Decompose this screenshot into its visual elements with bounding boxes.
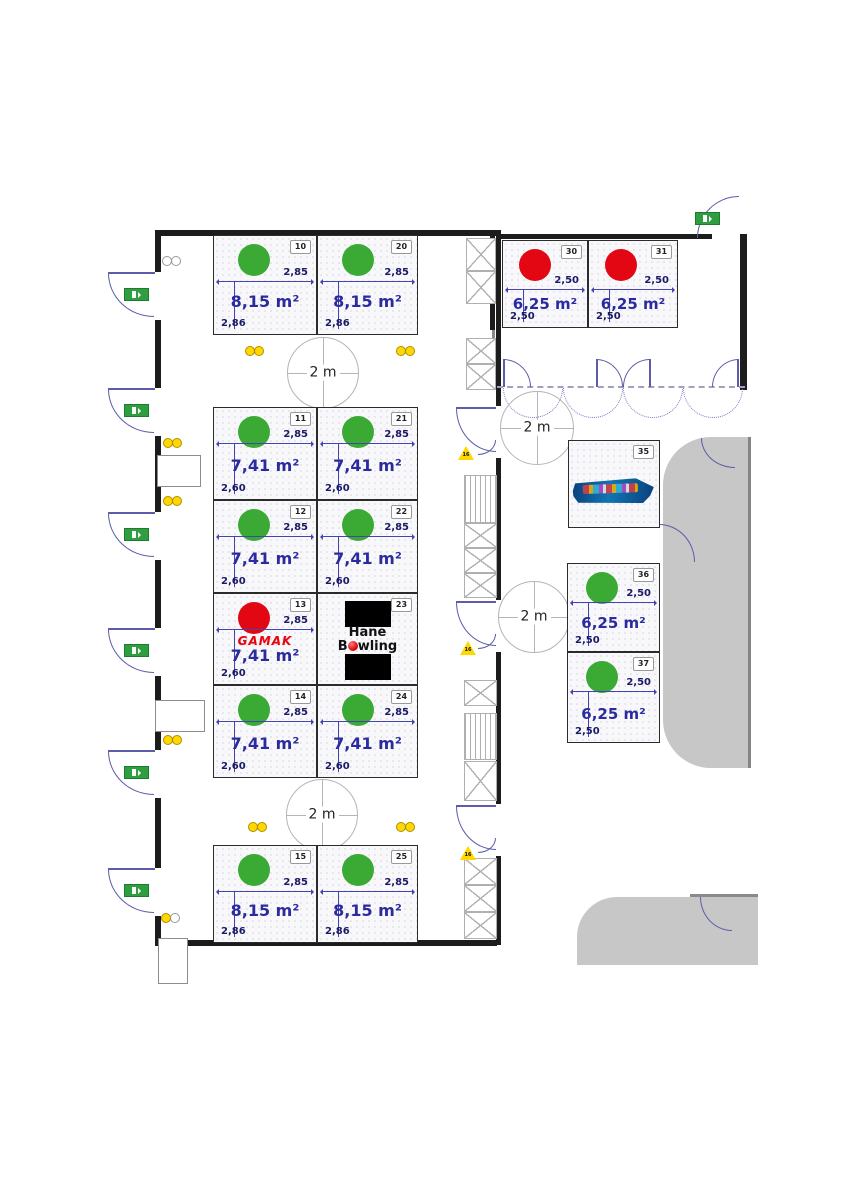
- booth-number: 21: [391, 412, 412, 426]
- area-label: 7,41 m²: [214, 549, 316, 568]
- wall-segment: [497, 234, 712, 239]
- area-label: 7,41 m²: [214, 646, 316, 665]
- swing-arc-dotted: [623, 388, 683, 418]
- wall-segment: [155, 230, 161, 272]
- shaft-box: [464, 858, 497, 885]
- dim-line-h: [217, 281, 313, 282]
- door-arc: [596, 359, 623, 387]
- area-label: 6,25 m²: [568, 614, 659, 632]
- circle-label: 2 m: [288, 365, 358, 381]
- dim-side-label: 2,50: [575, 726, 600, 737]
- circulation-circle: 2 m: [500, 391, 574, 465]
- dim-side-label: 2,86: [325, 318, 350, 329]
- circle-label: 2 m: [501, 420, 573, 436]
- booth-number: 10: [290, 240, 311, 254]
- door-arc: [623, 359, 650, 387]
- booth-31[interactable]: 31 2,50 2,50 6,25 m²: [588, 240, 678, 328]
- warning-triangle-icon: 16: [460, 846, 476, 860]
- booth-37[interactable]: 37 2,50 2,50 6,25 m²: [567, 652, 660, 743]
- door-leaf: [108, 628, 155, 630]
- booth-11[interactable]: 11 2,85 2,60 7,41 m²: [213, 407, 317, 500]
- dim-side-label: 2,60: [325, 576, 350, 587]
- dim-side-label: 2,50: [575, 635, 600, 646]
- booth-20[interactable]: 20 2,85 2,86 8,15 m²: [317, 235, 418, 335]
- dim-top-label: 2,50: [644, 275, 669, 286]
- exit-sign-icon: [124, 884, 149, 897]
- dim-side-label: 2,60: [221, 668, 246, 679]
- socket-icon: [245, 346, 264, 356]
- circulation-circle: 2 m: [286, 779, 358, 851]
- wall-segment: [496, 230, 501, 406]
- shaft-box: [464, 573, 497, 598]
- area-label: 7,41 m²: [318, 456, 417, 475]
- stairs-box: [464, 475, 497, 523]
- dim-top-label: 2,85: [283, 877, 308, 888]
- warning-triangle-icon: 16: [458, 446, 474, 460]
- dim-top-label: 2,85: [384, 429, 409, 440]
- booth-number: 23: [391, 598, 412, 612]
- booth-number: 31: [651, 245, 672, 259]
- dim-line-h: [217, 536, 313, 537]
- dim-side-label: 2,60: [221, 483, 246, 494]
- door-arc: [712, 359, 739, 387]
- dim-side-label: 2,86: [221, 926, 246, 937]
- circulation-circle: 2 m: [287, 337, 359, 409]
- dim-line-h: [217, 891, 313, 892]
- socket-icon: [163, 438, 182, 448]
- area-label: 8,15 m²: [318, 901, 417, 920]
- socket-icon: [161, 913, 180, 923]
- wall-segment: [155, 560, 161, 628]
- dim-line-h: [321, 443, 414, 444]
- shaft-box: [464, 885, 497, 912]
- area-label: 7,41 m²: [214, 456, 316, 475]
- hane-bowling-logo: Hane Bowling: [318, 626, 417, 654]
- exit-sign-icon: [124, 404, 149, 417]
- door-leaf: [108, 388, 155, 390]
- booth-number: 36: [633, 568, 654, 582]
- socket-icon: [396, 822, 415, 832]
- dim-side-label: 2,86: [325, 926, 350, 937]
- socket-icon: [248, 822, 267, 832]
- booth-number: 35: [633, 445, 654, 459]
- dim-line-h: [321, 891, 414, 892]
- dim-top-label: 2,85: [384, 267, 409, 278]
- area-label: 7,41 m²: [318, 549, 417, 568]
- status-dot: [238, 244, 270, 276]
- booth-35-banner-logo: [573, 478, 655, 506]
- warning-triangle-icon: 16: [460, 641, 476, 655]
- dim-top-label: 2,85: [283, 267, 308, 278]
- booth-36[interactable]: 36 2,50 2,50 6,25 m²: [567, 563, 660, 652]
- booth-number: 20: [391, 240, 412, 254]
- booth-13[interactable]: 13 2,85 2,60 GAMAK 7,41 m²: [213, 593, 317, 685]
- shaft-box: [466, 238, 496, 271]
- dim-line-h: [571, 602, 656, 603]
- dim-side-label: 2,60: [221, 576, 246, 587]
- dim-side-label: 2,60: [221, 761, 246, 772]
- wall-niche: [158, 938, 188, 984]
- status-dot: [342, 244, 374, 276]
- socket-icon: [162, 256, 181, 266]
- area-label: 6,25 m²: [589, 295, 677, 313]
- dim-line-h: [321, 721, 414, 722]
- door-arc: [478, 634, 496, 649]
- dim-side-label: 2,86: [221, 318, 246, 329]
- dim-top-label: 2,85: [384, 522, 409, 533]
- door-leaf: [503, 359, 505, 387]
- booth-number: 30: [561, 245, 582, 259]
- dim-top-label: 2,85: [283, 429, 308, 440]
- circulation-circle: 2 m: [498, 581, 570, 653]
- booth-15[interactable]: 15 2,85 2,86 8,15 m²: [213, 845, 317, 943]
- socket-icon: [163, 735, 182, 745]
- exit-sign-icon: [124, 644, 149, 657]
- shaft-box: [464, 761, 497, 801]
- bowling-ball-icon: o: [348, 641, 358, 651]
- door-leaf: [596, 359, 598, 387]
- booth-number: 13: [290, 598, 311, 612]
- dim-line-h: [217, 443, 313, 444]
- door-leaf: [737, 359, 739, 387]
- circle-label: 2 m: [499, 609, 569, 625]
- booth-number: 37: [633, 657, 654, 671]
- wall-segment: [155, 320, 161, 388]
- status-dot: [586, 661, 618, 693]
- wall-segment: [740, 234, 747, 390]
- booth-number: 14: [290, 690, 311, 704]
- dim-top-label: 2,85: [384, 877, 409, 888]
- dim-line-h: [321, 281, 414, 282]
- socket-icon: [396, 346, 415, 356]
- area-label: 8,15 m²: [214, 292, 316, 311]
- booth-10[interactable]: 10 2,85 2,86 8,15 m²: [213, 235, 317, 335]
- door-arc: [503, 359, 531, 387]
- booth-number: 24: [391, 690, 412, 704]
- dim-line-h: [321, 536, 414, 537]
- shaft-box: [466, 364, 496, 390]
- area-label: 7,41 m²: [318, 734, 417, 753]
- booth-23[interactable]: 23 Hane Bowling: [317, 593, 418, 685]
- booth-25[interactable]: 25 2,85 2,86 8,15 m²: [317, 845, 418, 943]
- dim-top-label: 2,50: [626, 588, 651, 599]
- door-arc: [478, 838, 496, 853]
- status-dot: [519, 249, 551, 281]
- gray-structure: [663, 437, 751, 768]
- shaft-box: [464, 912, 497, 939]
- status-dot: [605, 249, 637, 281]
- booth-35[interactable]: 35: [568, 440, 660, 528]
- area-label: 6,25 m²: [503, 295, 587, 313]
- dim-top-label: 2,50: [554, 275, 579, 286]
- swing-arc-dotted: [683, 388, 743, 418]
- dim-line-h: [571, 691, 656, 692]
- wall-segment: [155, 798, 161, 868]
- area-label: 8,15 m²: [318, 292, 417, 311]
- dim-top-label: 2,85: [384, 707, 409, 718]
- shaft-box: [466, 271, 496, 304]
- exit-sign-icon: [124, 288, 149, 301]
- exit-sign-icon: [695, 212, 720, 225]
- stairs-box: [464, 713, 497, 760]
- booth-14[interactable]: 14 2,85 2,60 7,41 m²: [213, 685, 317, 778]
- area-label: 6,25 m²: [568, 705, 659, 723]
- socket-icon: [163, 496, 182, 506]
- exit-sign-icon: [124, 766, 149, 779]
- booth-number: 22: [391, 505, 412, 519]
- area-label: 8,15 m²: [214, 901, 316, 920]
- status-dot: [342, 854, 374, 886]
- dim-top-label: 2,85: [283, 707, 308, 718]
- hane-banner-block: [345, 654, 391, 680]
- status-dot: [586, 572, 618, 604]
- floor-plan: 16 16 16 2 m 2 m 2 m 2 m: [0, 0, 848, 1200]
- circle-label: 2 m: [287, 807, 357, 823]
- shaft-box: [464, 680, 497, 706]
- dim-top-label: 2,85: [283, 615, 308, 626]
- hane-banner-block: [345, 601, 391, 627]
- booth-12[interactable]: 12 2,85 2,60 7,41 m²: [213, 500, 317, 593]
- shaft-box: [464, 523, 497, 548]
- dim-top-label: 2,85: [283, 522, 308, 533]
- booth-24[interactable]: 24 2,85 2,60 7,41 m²: [317, 685, 418, 778]
- swing-arc-dotted: [563, 388, 623, 418]
- dim-side-label: 2,60: [325, 761, 350, 772]
- door-leaf: [108, 272, 155, 274]
- door-leaf: [108, 750, 155, 752]
- area-label: 7,41 m²: [214, 734, 316, 753]
- door-leaf: [108, 512, 155, 514]
- dim-top-label: 2,50: [626, 677, 651, 688]
- shaft-box: [464, 548, 497, 573]
- booth-number: 12: [290, 505, 311, 519]
- booth-22[interactable]: 22 2,85 2,60 7,41 m²: [317, 500, 418, 593]
- wall-niche: [155, 700, 205, 732]
- door-leaf: [649, 359, 651, 387]
- dim-line-h: [592, 289, 674, 290]
- door-leaf: [108, 868, 155, 870]
- booth-21[interactable]: 21 2,85 2,60 7,41 m²: [317, 407, 418, 500]
- wall-niche: [157, 455, 201, 487]
- booth-number: 11: [290, 412, 311, 426]
- exit-sign-icon: [124, 528, 149, 541]
- booth-30[interactable]: 30 2,50 2,50 6,25 m²: [502, 240, 588, 328]
- status-dot: [238, 854, 270, 886]
- dim-line-h: [217, 629, 313, 630]
- dim-line-h: [506, 289, 584, 290]
- dim-line-h: [217, 721, 313, 722]
- dim-side-label: 2,60: [325, 483, 350, 494]
- booth-number: 15: [290, 850, 311, 864]
- door-arc: [478, 440, 496, 455]
- shaft-box: [466, 338, 496, 364]
- booth-number: 25: [391, 850, 412, 864]
